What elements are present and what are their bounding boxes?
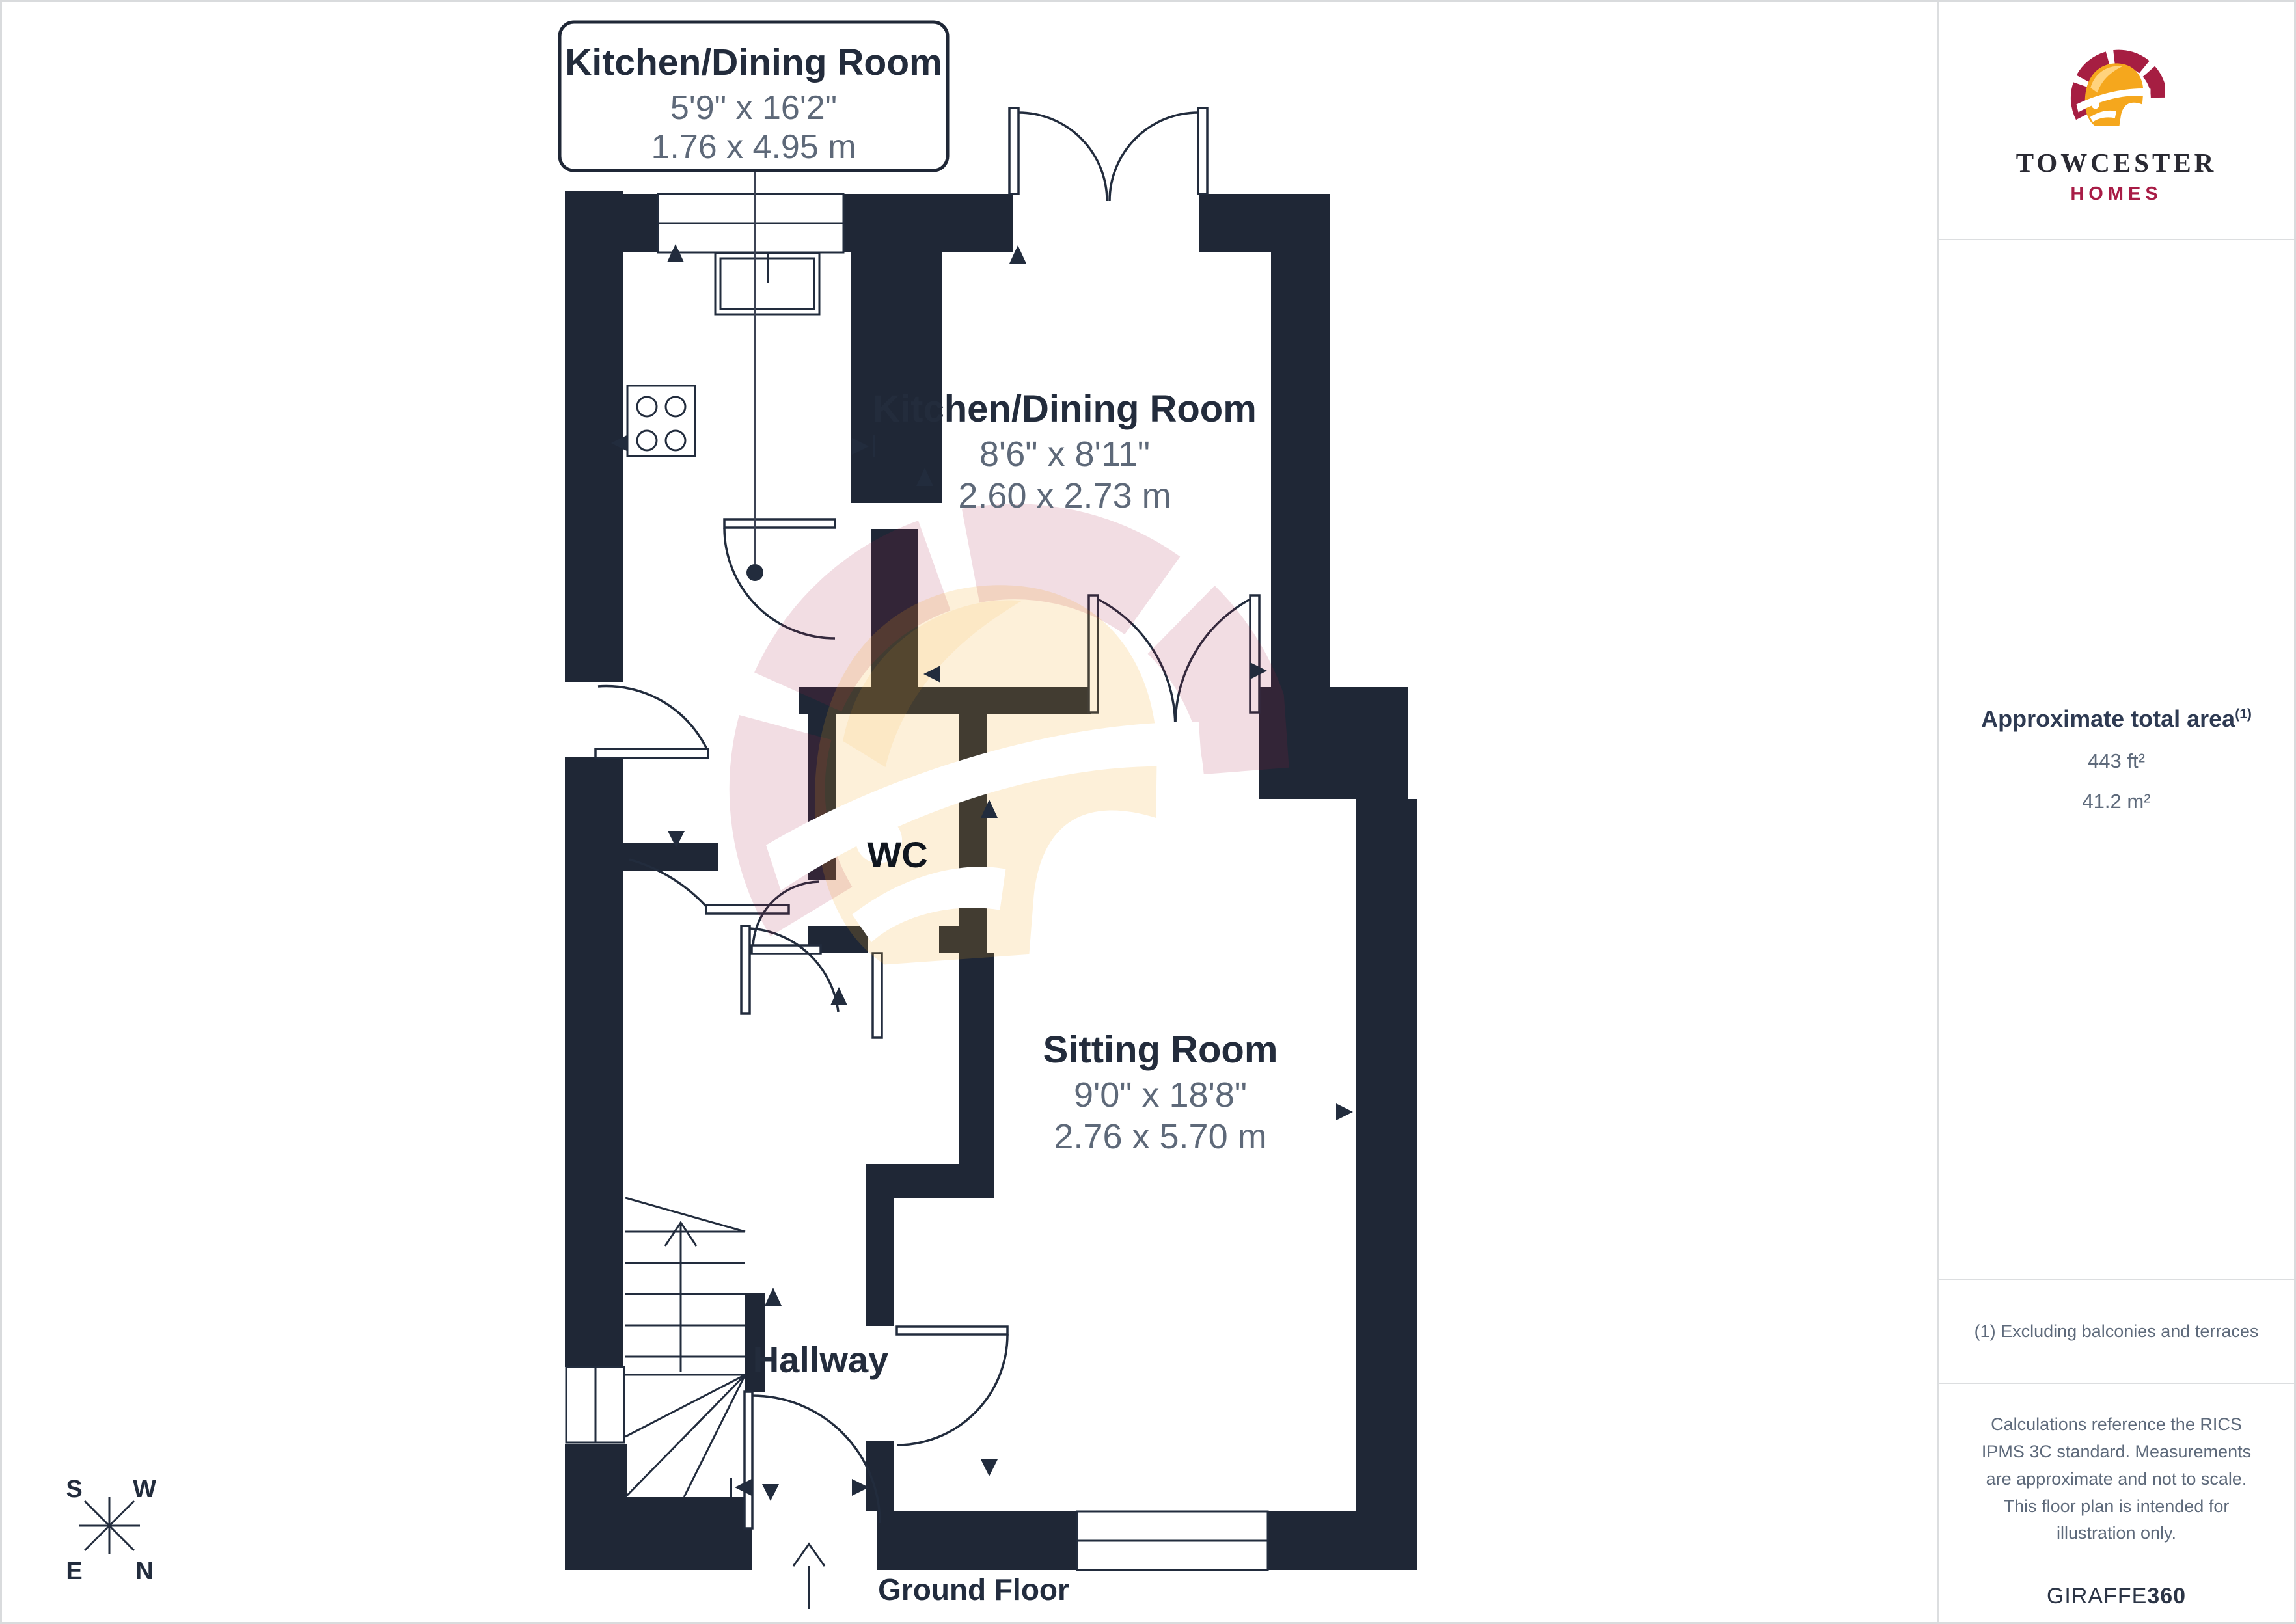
front-door-arc (752, 1396, 880, 1523)
brand-name: TOWCESTER (2016, 147, 2217, 178)
door-leaf (1198, 108, 1207, 194)
credit-suffix: 360 (2147, 1584, 2186, 1608)
compass-s: S (66, 1476, 82, 1503)
entrance-arrowhead (793, 1544, 825, 1566)
wall (1268, 1511, 1417, 1570)
door-leaf (752, 945, 821, 954)
area-title: Approximate total area(1) (1981, 705, 2252, 733)
wall (623, 843, 718, 871)
door-leaf (595, 749, 708, 758)
wall (851, 252, 942, 503)
footnote-section: (1) Excluding balconies and terraces (1939, 1279, 2294, 1383)
room-dims-metric: 2.60 x 2.73 m (958, 476, 1171, 515)
stair-winder (625, 1375, 745, 1497)
floor-label: Ground Floor (878, 1573, 1069, 1606)
stair-edge (625, 1198, 745, 1232)
wall (565, 1444, 627, 1570)
wall (866, 1164, 994, 1198)
wall (959, 953, 994, 1164)
room-label-hallway: Hallway (753, 1339, 889, 1380)
door-leaf (741, 926, 750, 1014)
floorplan-canvas: Kitchen/Dining Room 5'9" x 16'2" 1.76 x … (2, 2, 1940, 1624)
marker-tick (730, 1478, 732, 1497)
stair-winder (625, 1375, 745, 1437)
room-dims-imperial: 8'6" x 8'11" (979, 435, 1150, 474)
room-dims-metric: 2.76 x 5.70 m (1054, 1117, 1266, 1156)
disclaimer-section: Calculations reference the RICS IPMS 3C … (1939, 1383, 2294, 1622)
door-marker (762, 1484, 779, 1501)
brand-section: TOWCESTER HOMES (1939, 2, 2294, 240)
disclaimer-text: Calculations reference the RICS IPMS 3C … (1969, 1411, 2263, 1547)
wall (566, 194, 658, 252)
giraffe360-credit: GIRAFFE360 (1969, 1584, 2264, 1609)
wall (627, 1497, 752, 1570)
wall (1199, 194, 1330, 252)
room-label-kitchen: Kitchen/Dining Room (873, 388, 1257, 430)
door-marker (1336, 1103, 1353, 1120)
floorplan-page: Kitchen/Dining Room 5'9" x 16'2" 1.76 x … (0, 0, 2296, 1624)
door-leaf (873, 953, 882, 1038)
front-door-leaf (745, 1392, 752, 1528)
compass-n: N (135, 1558, 153, 1585)
wall (565, 191, 623, 682)
marker-tick (873, 435, 875, 457)
credit-brand: GIRAFFE (2047, 1584, 2147, 1608)
room-label-wc: WC (867, 834, 927, 875)
callout-metric: 1.76 x 4.95 m (651, 128, 856, 166)
wall (1356, 799, 1417, 1570)
towcester-helmet-icon (2064, 43, 2168, 141)
wall (866, 1198, 894, 1326)
area-section: Approximate total area(1) 443 ft² 41.2 m… (1939, 240, 2294, 1279)
wall (1271, 252, 1330, 693)
callout-imperial: 5'9" x 16'2" (670, 89, 837, 127)
wall (565, 757, 623, 1367)
area-imperial: 443 ft² (2088, 750, 2145, 773)
compass-w: W (133, 1476, 156, 1503)
door-marker (735, 1479, 752, 1496)
stair-winder (684, 1375, 745, 1497)
dimension-callout: Kitchen/Dining Room 5'9" x 16'2" 1.76 x … (560, 22, 948, 170)
wall (877, 1511, 1077, 1570)
wall (843, 194, 942, 252)
compass-icon (79, 1497, 140, 1554)
compass-e: E (66, 1558, 82, 1585)
info-sidebar: TOWCESTER HOMES Approximate total area(1… (1937, 2, 2294, 1622)
brand-tagline: HOMES (2070, 183, 2162, 205)
door-marker (765, 1288, 782, 1306)
area-title-footnote-ref: (1) (2235, 707, 2252, 722)
door-leaf (724, 519, 835, 528)
area-title-text: Approximate total area (1981, 705, 2235, 732)
callout-title: Kitchen/Dining Room (565, 42, 942, 83)
wall (942, 194, 1013, 252)
room-dims-imperial: 9'0" x 18'8" (1074, 1076, 1247, 1115)
door-marker (981, 1459, 998, 1476)
room-label-sitting: Sitting Room (1043, 1029, 1278, 1071)
door-arc (897, 1334, 1007, 1445)
door-leaf (897, 1327, 1007, 1334)
callout-leader-dot (746, 564, 763, 581)
watermark-helmet-icon (746, 535, 1263, 972)
door-arc (598, 686, 707, 749)
door-arc (1110, 113, 1198, 201)
door-leaf (1009, 108, 1018, 194)
compass-labels: S W E N (66, 1476, 156, 1585)
door-arc (1018, 113, 1107, 201)
footnote-text: (1) Excluding balconies and terraces (1975, 1321, 2259, 1342)
area-metric: 41.2 m² (2082, 790, 2150, 813)
